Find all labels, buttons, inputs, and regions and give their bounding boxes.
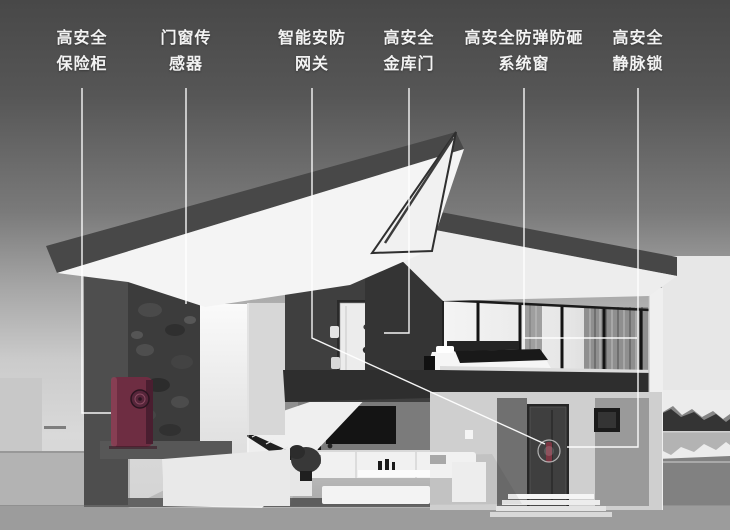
glass-wall <box>200 304 247 458</box>
pillow <box>436 346 454 353</box>
lock-highlight-glow <box>544 446 554 456</box>
plinth-front <box>163 449 290 506</box>
label-line: 高安全 <box>543 26 730 52</box>
gateway-device-top <box>330 326 339 338</box>
nightstand <box>424 356 435 370</box>
annotated-villa-cutaway-diagram: 高安全 保险柜 门窗传 感器 智能安防 网关 高安全 金库门 高安全防弹防砸 系… <box>0 0 730 530</box>
security-safe <box>109 377 157 449</box>
sofa-set <box>290 452 522 506</box>
inner-wall <box>247 303 285 435</box>
intercom-screen <box>598 412 616 428</box>
label-high-security-vein-lock: 高安全 静脉锁 <box>543 26 730 78</box>
cushion <box>430 455 446 464</box>
wall-switch <box>465 430 473 439</box>
leader-window <box>524 88 637 338</box>
console-decor-2 <box>328 444 333 449</box>
gateway-device-bottom <box>331 357 340 369</box>
villa-illustration <box>0 0 730 530</box>
label-line: 静脉锁 <box>543 52 730 78</box>
